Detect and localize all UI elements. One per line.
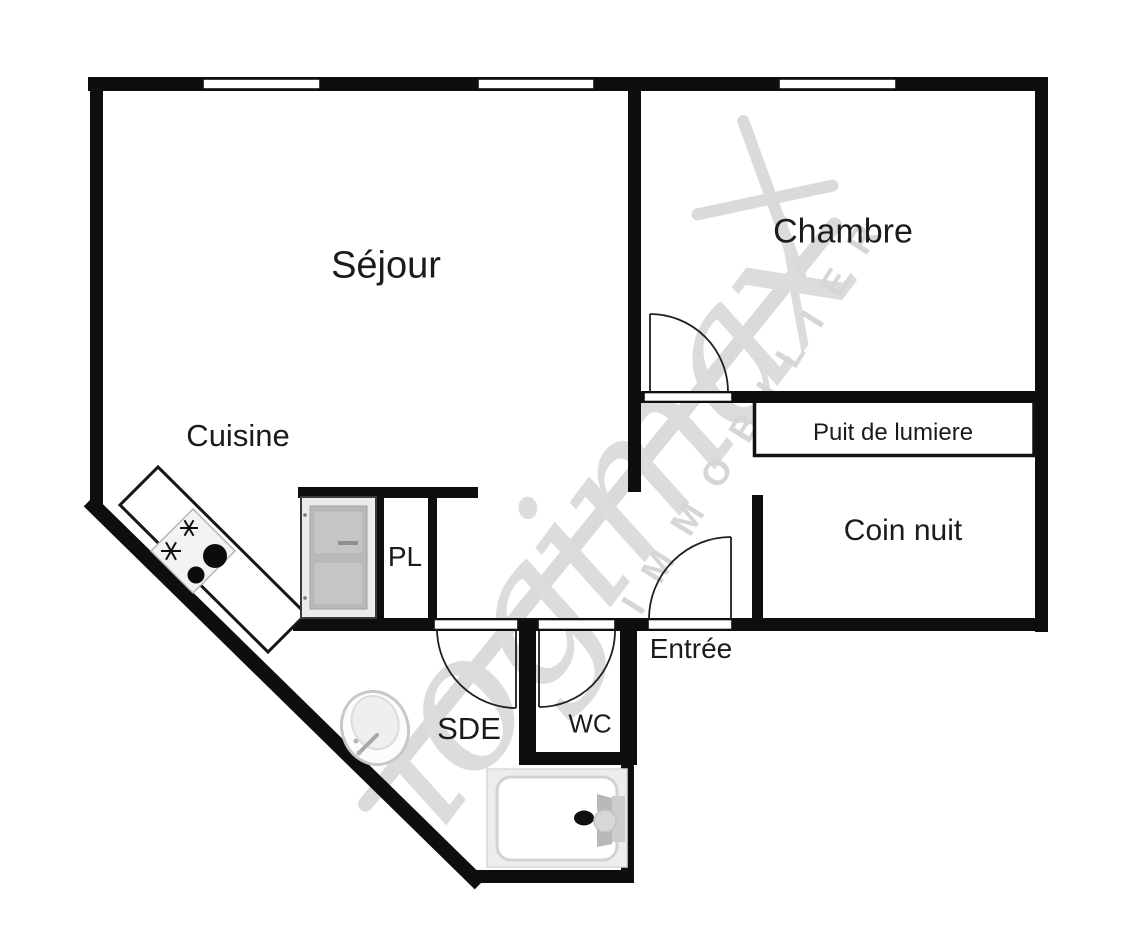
room-labels: Séjour Chambre Cuisine Puit de lumiere C… (0, 0, 1136, 950)
room-label-cuisine: Cuisine (186, 418, 289, 454)
room-label-wc: WC (568, 709, 611, 740)
room-label-puit-de-lumiere: Puit de lumiere (813, 419, 973, 447)
room-label-sde: SDE (437, 711, 501, 747)
room-label-sejour: Séjour (331, 245, 441, 288)
room-label-coin-nuit: Coin nuit (844, 514, 962, 548)
floor-plan: logimax IMMOBILIER (0, 0, 1136, 950)
room-label-entree: Entrée (650, 633, 733, 665)
room-label-chambre: Chambre (773, 213, 913, 252)
room-label-placard: PL (388, 541, 422, 573)
